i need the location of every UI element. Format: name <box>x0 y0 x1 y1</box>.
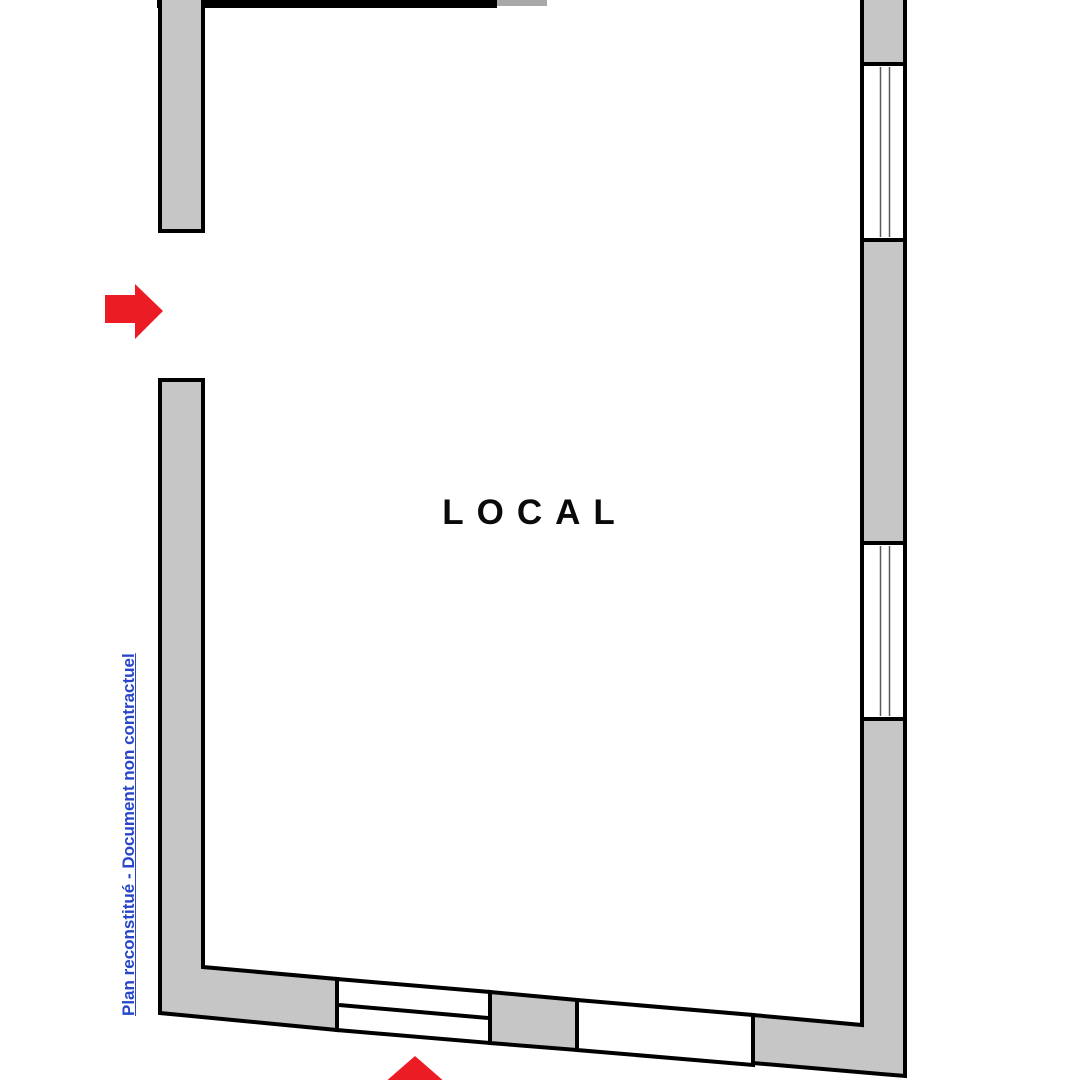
right-window-lower <box>862 543 905 719</box>
right-window-upper <box>862 64 905 240</box>
wall-left-and-bottom <box>160 380 337 1030</box>
entrance-arrow-bottom-icon <box>384 1056 446 1080</box>
wall-right-top <box>862 0 905 64</box>
entrance-arrow-left-icon <box>105 284 163 339</box>
floor-plan-page: LOCAL Plan reconstitué - Document non co… <box>0 0 1080 1080</box>
wall-bottom-middle <box>490 992 577 1050</box>
room-label: LOCAL <box>442 493 628 532</box>
top-boundary-line <box>157 0 497 8</box>
watermark-text: Plan reconstitué - Document non contract… <box>118 656 140 1016</box>
top-boundary-line-faded <box>497 0 547 6</box>
bottom-door-opening <box>577 1000 753 1065</box>
wall-top-left <box>160 0 203 231</box>
wall-right-middle <box>862 240 905 543</box>
wall-bottom-right-and-right-lower <box>753 719 905 1076</box>
floor-plan-canvas: LOCAL <box>0 0 1080 1080</box>
